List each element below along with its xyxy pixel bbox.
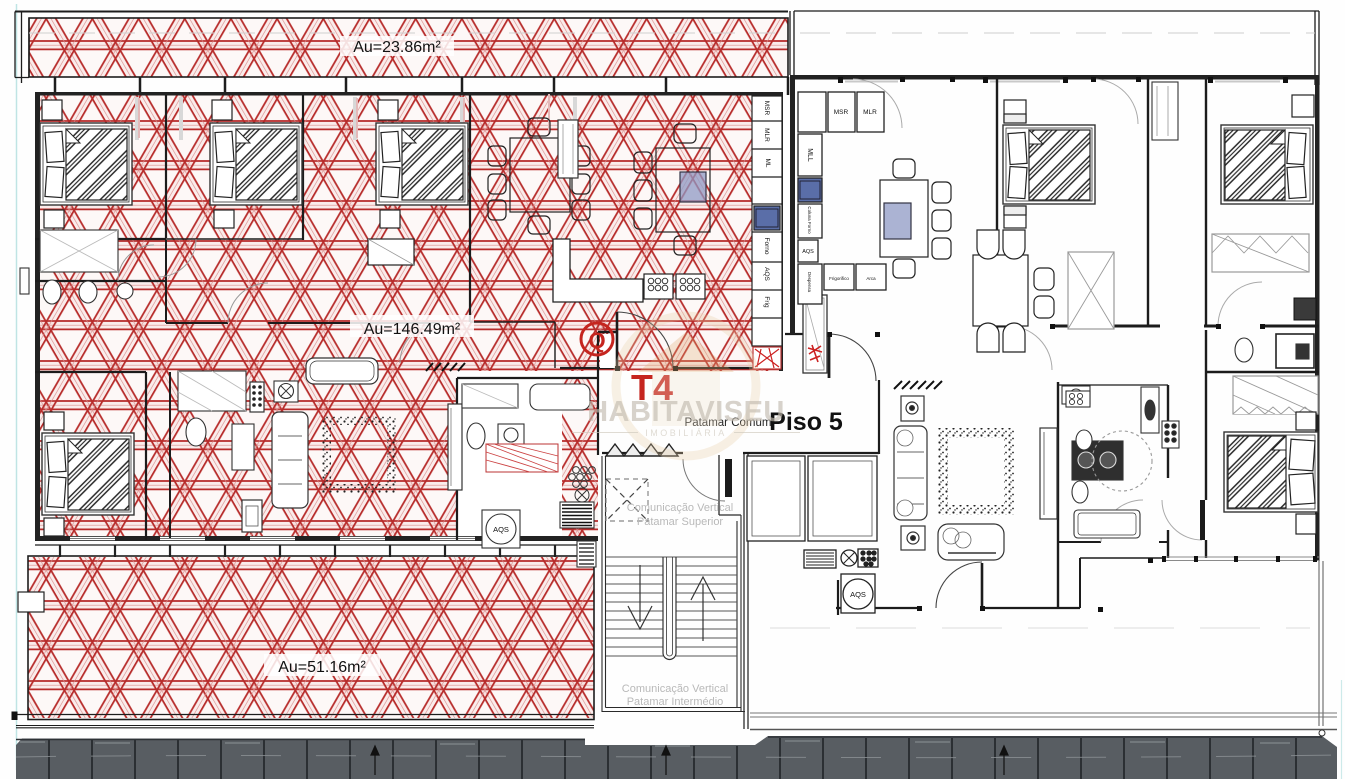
svg-text:AQS: AQS (850, 590, 866, 599)
svg-text:Q: Q (588, 328, 605, 353)
svg-text:Patamar Superior: Patamar Superior (637, 516, 724, 528)
svg-text:Patamar Intermédio: Patamar Intermédio (627, 696, 724, 708)
svg-text:Au=51.16m²: Au=51.16m² (278, 659, 366, 676)
svg-text:Frigorifico: Frigorifico (829, 276, 849, 281)
svg-text:AQS: AQS (493, 525, 509, 534)
svg-text:Despensa: Despensa (807, 272, 812, 293)
svg-text:AQS: AQS (763, 267, 770, 281)
svg-text:Forno: Forno (763, 238, 770, 255)
svg-text:AQS: AQS (802, 249, 814, 255)
svg-text:Arca: Arca (866, 276, 876, 281)
svg-text:HABITAVISEU: HABITAVISEU (587, 396, 785, 428)
svg-text:MLR: MLR (863, 109, 877, 116)
svg-text:Au=23.86m²: Au=23.86m² (353, 39, 441, 56)
svg-text:MLR: MLR (763, 128, 770, 142)
svg-text:Frig: Frig (763, 296, 770, 308)
svg-text:Comunicação Vertical: Comunicação Vertical (627, 502, 733, 514)
svg-text:MSR: MSR (834, 109, 849, 116)
svg-text:Coluna Forno: Coluna Forno (807, 206, 812, 234)
svg-text:ML: ML (764, 158, 771, 167)
svg-text:Comunicação Vertical: Comunicação Vertical (622, 683, 728, 695)
svg-text:MLL: MLL (806, 148, 813, 162)
svg-text:Au=146.49m²: Au=146.49m² (364, 321, 461, 338)
svg-text:MSR: MSR (763, 101, 770, 116)
svg-text:IMOBILIÁRIA: IMOBILIÁRIA (645, 428, 727, 438)
